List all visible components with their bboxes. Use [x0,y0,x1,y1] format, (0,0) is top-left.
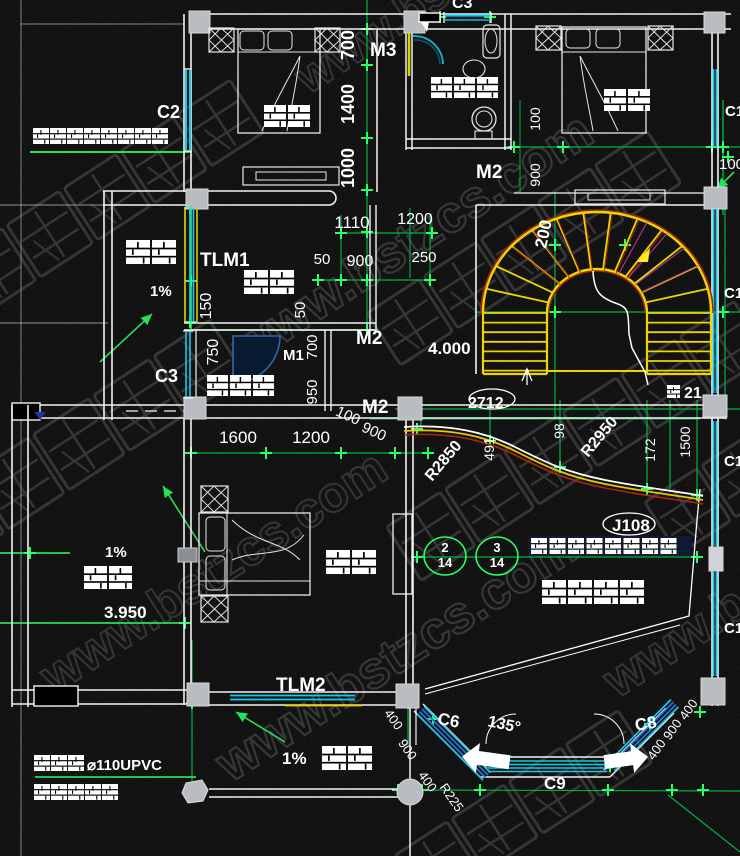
svg-text:M3: M3 [370,40,396,61]
svg-text:1%: 1% [282,749,307,768]
svg-text:700: 700 [338,30,358,60]
svg-text:C8: C8 [633,712,658,734]
svg-text:C6: C6 [436,709,461,731]
svg-text:2712: 2712 [468,395,504,412]
svg-text:1500: 1500 [677,426,693,457]
svg-text:950: 950 [304,379,321,404]
svg-text:172: 172 [642,438,658,462]
svg-text:J108: J108 [612,516,650,535]
svg-text:1400: 1400 [338,84,358,124]
svg-text:M1: M1 [283,347,304,364]
svg-text:C1: C1 [724,620,740,637]
svg-text:150: 150 [198,293,215,320]
svg-text:900: 900 [527,163,543,187]
svg-text:M2: M2 [356,328,382,349]
svg-text:3.950: 3.950 [104,603,147,622]
svg-text:C3: C3 [452,0,473,12]
svg-text:C3: C3 [155,366,178,386]
svg-text:⌀110UPVC: ⌀110UPVC [87,757,162,774]
svg-text:C1: C1 [725,103,740,120]
svg-text:1%: 1% [105,544,127,561]
svg-text:TLM2: TLM2 [276,675,326,696]
svg-text:98: 98 [551,423,567,439]
svg-text:100: 100 [527,107,543,131]
svg-text:C2: C2 [157,102,180,122]
svg-text:14: 14 [438,555,453,570]
svg-text:M2: M2 [362,397,388,418]
svg-text:TLM1: TLM1 [200,250,250,271]
svg-text:750: 750 [205,339,222,366]
svg-text:900: 900 [347,253,374,270]
svg-text:1%: 1% [150,283,172,300]
svg-text:C1: C1 [724,285,740,302]
svg-text:50: 50 [314,251,331,268]
svg-text:C1: C1 [724,453,740,470]
svg-text:100: 100 [719,156,740,173]
svg-text:1200: 1200 [292,428,330,447]
svg-text:M2: M2 [476,162,502,183]
svg-text:14: 14 [490,555,505,570]
svg-text:1200: 1200 [397,211,433,228]
svg-text:C9: C9 [544,774,566,793]
svg-text:2: 2 [441,540,448,555]
svg-text:1000: 1000 [338,148,358,188]
svg-text:1110: 1110 [334,213,369,232]
svg-text:491: 491 [481,437,497,461]
svg-text:1600: 1600 [219,428,257,447]
svg-text:3: 3 [493,540,500,555]
svg-text:700: 700 [304,334,321,359]
svg-text:21: 21 [684,385,702,402]
svg-text:4.000: 4.000 [428,339,471,358]
svg-text:250: 250 [411,249,436,266]
svg-text:50: 50 [292,302,309,319]
